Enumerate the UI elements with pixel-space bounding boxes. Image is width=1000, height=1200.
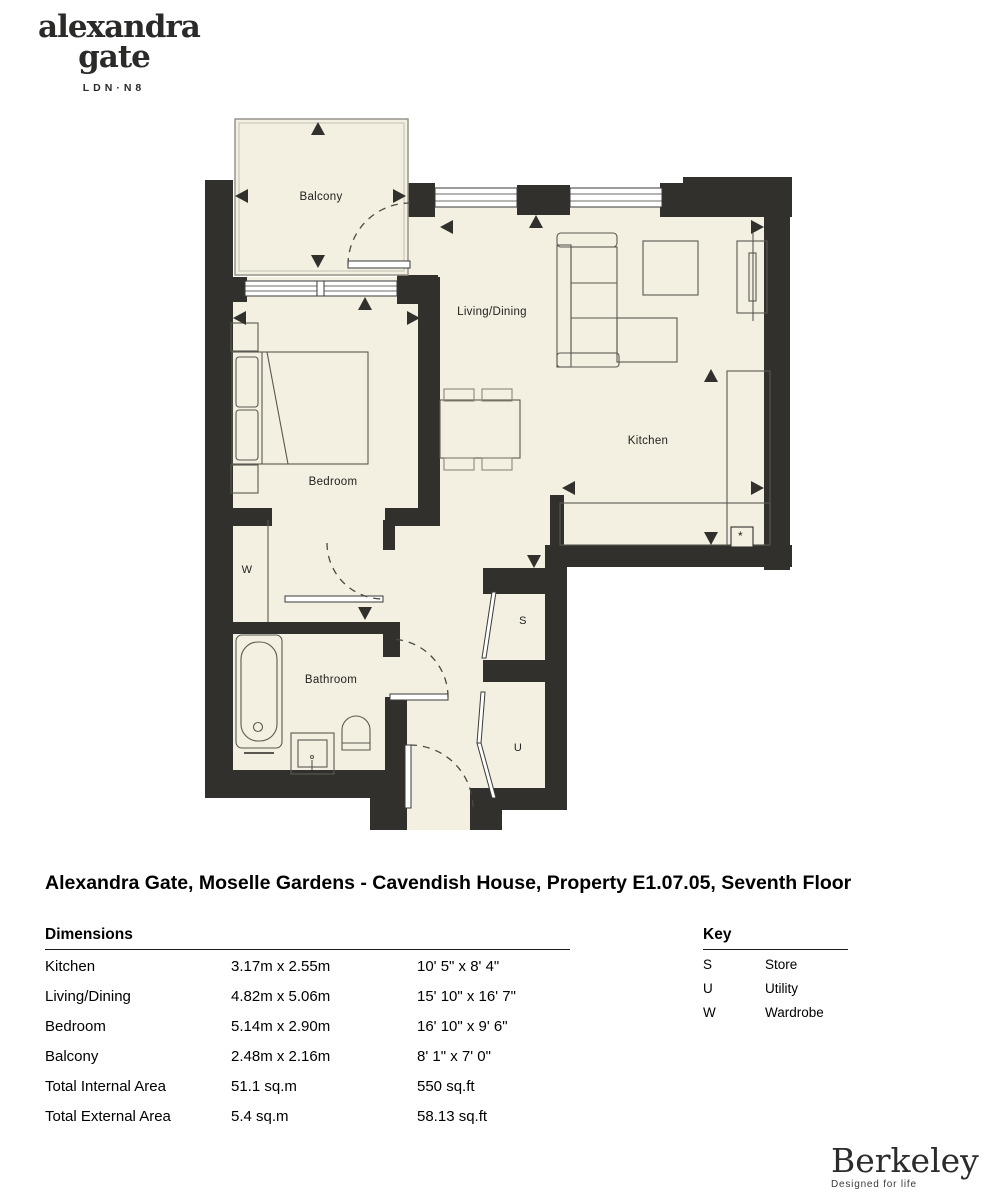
table-row: Total Internal Area 51.1 sq.m 550 sq.ft — [45, 1072, 570, 1102]
logo-line2: gate — [38, 42, 190, 72]
room-name: Bedroom — [45, 1012, 231, 1042]
brochure-page: alexandra gate LDN·N8 — [0, 0, 1000, 1200]
balcony-label: Balcony — [261, 191, 381, 203]
page-title: Alexandra Gate, Moselle Gardens - Cavend… — [45, 872, 975, 895]
table-row: Kitchen 3.17m x 2.55m 10' 5" x 8' 4" — [45, 952, 570, 982]
alexandra-gate-logo: alexandra gate LDN·N8 — [38, 12, 190, 94]
store-top-wall — [483, 568, 545, 594]
room-name: Kitchen — [45, 952, 231, 982]
table-row: Total External Area 5.4 sq.m 58.13 sq.ft — [45, 1102, 570, 1132]
metric-size: 5.4 sq.m — [231, 1102, 417, 1132]
floor-plan: Balcony Living/Dining Kitchen Bedroom Ba… — [200, 105, 800, 845]
key-heading: Key — [703, 926, 848, 950]
metric-size: 2.48m x 2.16m — [231, 1042, 417, 1072]
table-row: Living/Dining 4.82m x 5.06m 15' 10" x 16… — [45, 982, 570, 1012]
key-row: S Store — [703, 953, 848, 977]
key-section: Key S Store U Utility W Wardrobe — [703, 926, 848, 1025]
utility-bottom-wall — [500, 788, 567, 810]
logo-line1: alexandra — [38, 12, 190, 42]
living-window-1 — [435, 188, 517, 207]
metric-size: 5.14m x 2.90m — [231, 1012, 417, 1042]
table-row: Bedroom 5.14m x 2.90m 16' 10" x 9' 6" — [45, 1012, 570, 1042]
store-utility-divider — [483, 660, 545, 682]
living-dining-label: Living/Dining — [412, 306, 572, 318]
imperial-size: 550 sq.ft — [417, 1072, 570, 1102]
floor-areas — [228, 119, 790, 830]
key-row: U Utility — [703, 977, 848, 1001]
table-row: Balcony 2.48m x 2.16m 8' 1" x 7' 0" — [45, 1042, 570, 1072]
imperial-size: 8' 1" x 7' 0" — [417, 1042, 570, 1072]
floor-plan-drawing — [200, 105, 800, 845]
metric-size: 51.1 sq.m — [231, 1072, 417, 1102]
wardrobe-label: W — [227, 564, 267, 576]
key-label: Wardrobe — [765, 1001, 848, 1025]
store-label: S — [503, 615, 543, 627]
left-exterior-wall — [205, 180, 233, 798]
key-row: W Wardrobe — [703, 1001, 848, 1025]
bedroom-bottom-wall-left — [228, 508, 272, 526]
room-name: Total Internal Area — [45, 1072, 231, 1102]
dimensions-rows: Kitchen 3.17m x 2.55m 10' 5" x 8' 4" Liv… — [45, 952, 570, 1132]
key-label: Utility — [765, 977, 848, 1001]
top-pier-2 — [517, 185, 570, 215]
metric-size: 4.82m x 5.06m — [231, 982, 417, 1012]
imperial-size: 58.13 sq.ft — [417, 1102, 570, 1132]
dimensions-heading: Dimensions — [45, 926, 570, 950]
bathroom-top-wall — [228, 622, 390, 634]
imperial-size: 15' 10" x 16' 7" — [417, 982, 570, 1012]
entrance-left-wall-low — [370, 770, 407, 830]
kitchen-bottom-wall — [552, 545, 792, 567]
bedroom-label: Bedroom — [273, 476, 393, 488]
berkeley-logo: Berkeley Designed for life — [831, 1143, 979, 1190]
metric-size: 3.17m x 2.55m — [231, 952, 417, 982]
bedroom-window — [245, 281, 397, 296]
closet-right-wall — [545, 545, 567, 810]
bathroom-bottom-wall — [205, 770, 372, 798]
asterisk-label: * — [738, 529, 743, 543]
imperial-size: 10' 5" x 8' 4" — [417, 952, 570, 982]
key-symbol: U — [703, 977, 765, 1001]
imperial-size: 16' 10" x 9' 6" — [417, 1012, 570, 1042]
key-rows: S Store U Utility W Wardrobe — [703, 953, 848, 1025]
bathroom-label: Bathroom — [271, 674, 391, 686]
logo-subtitle: LDN·N8 — [38, 82, 190, 94]
top-pier-1 — [408, 183, 435, 217]
entrance-right-wall — [470, 788, 502, 830]
room-name: Total External Area — [45, 1102, 231, 1132]
key-symbol: W — [703, 1001, 765, 1025]
key-symbol: S — [703, 953, 765, 977]
berkeley-tagline: Designed for life — [831, 1179, 979, 1190]
right-exterior-wall — [764, 183, 790, 570]
entrance-left-wall-high — [385, 697, 407, 775]
berkeley-wordmark: Berkeley — [831, 1143, 979, 1179]
corridor-stub — [383, 520, 395, 550]
kitchen-label: Kitchen — [588, 435, 708, 447]
living-window-2 — [570, 188, 662, 207]
dimensions-section: Dimensions Kitchen 3.17m x 2.55m 10' 5" … — [45, 926, 570, 1132]
room-name: Living/Dining — [45, 982, 231, 1012]
utility-label: U — [498, 742, 538, 754]
room-name: Balcony — [45, 1042, 231, 1072]
key-label: Store — [765, 953, 848, 977]
